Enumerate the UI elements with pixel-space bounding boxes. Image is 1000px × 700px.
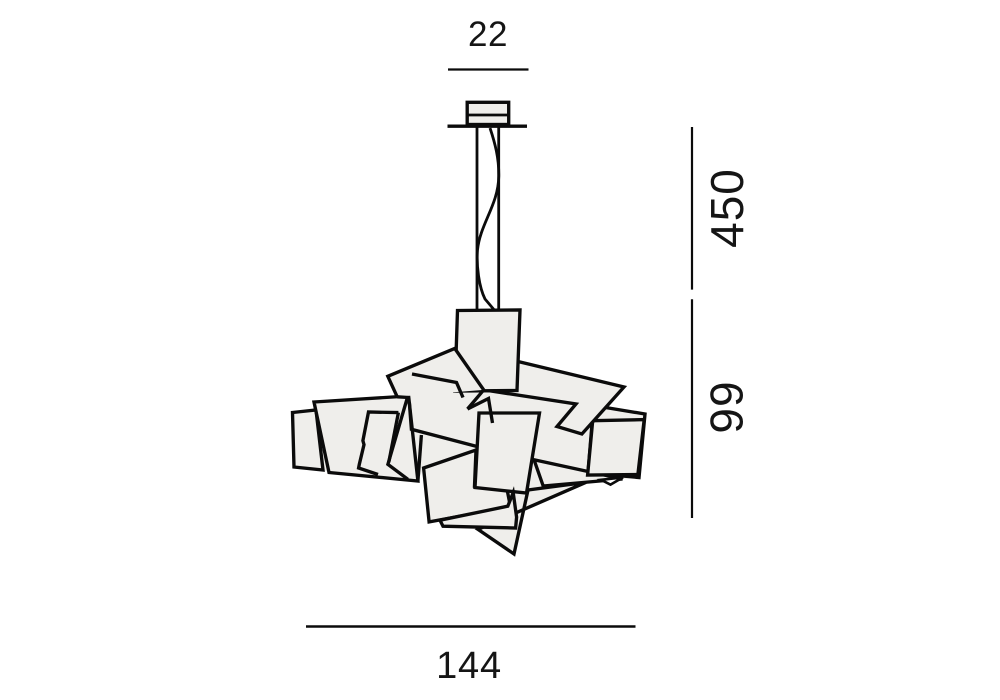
svg-text:22: 22	[468, 15, 508, 54]
svg-text:144: 144	[436, 645, 502, 687]
svg-text:450: 450	[701, 168, 753, 248]
svg-text:99: 99	[701, 380, 753, 433]
